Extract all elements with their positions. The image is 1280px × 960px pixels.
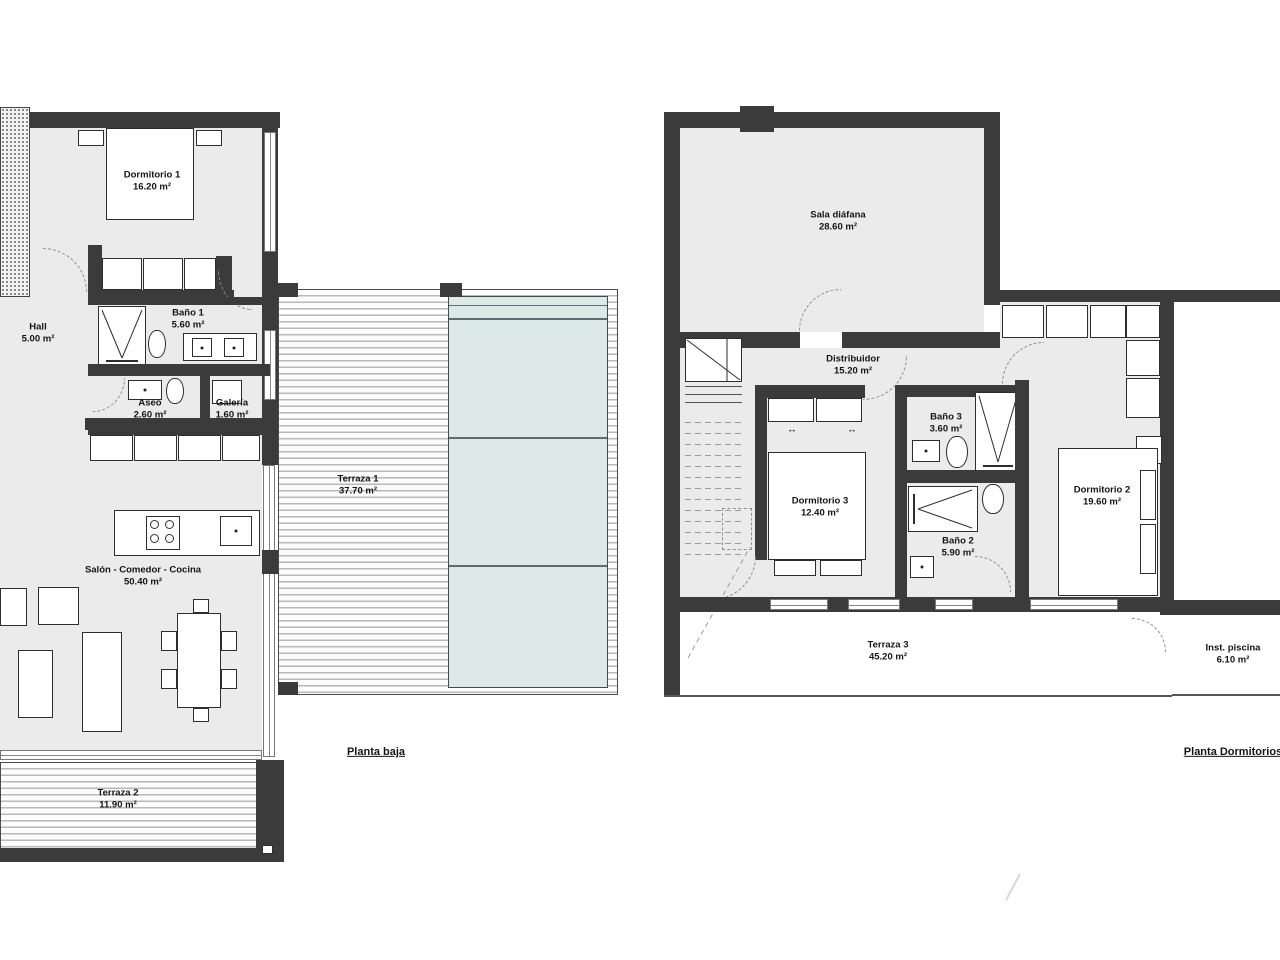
kitchen-sink-icon [220,516,252,546]
stair-tread [685,402,742,403]
window [264,132,276,252]
room-label-hall: Hall 5.00 m² [22,322,55,347]
wall [1015,380,1029,600]
wardrobe-icon [102,258,142,290]
wall-mullion [262,550,278,574]
wall [1000,290,1280,302]
sink-icon [192,338,212,357]
dining-table-icon [177,613,221,708]
burner-icon [150,520,159,529]
wall [88,297,270,305]
room-label-galeria: Galería 1.60 m² [216,398,249,423]
stair-tread [685,386,742,387]
pool-line [449,565,607,567]
hatched-wall [0,107,30,297]
sliding-glass-door [770,599,828,610]
toilet-icon [982,484,1004,514]
room-label-sala: Sala diáfana 28.60 m² [810,210,865,235]
sofa-icon [82,632,122,732]
wardrobe-icon [143,258,183,290]
column-marker [262,845,273,854]
wall [88,428,265,435]
stair-tread [685,394,742,395]
burner-icon [165,534,174,543]
stairs-icon [685,338,742,382]
chair-icon [221,669,237,689]
pillow-icon [774,560,816,576]
wardrobe-icon [90,435,133,461]
wall [895,385,907,600]
floorplan-canvas: Dormitorio 1 16.20 m² Hall 5.00 m² Baño … [0,0,1280,960]
room-label-dormitorio1: Dormitorio 1 16.20 m² [124,170,180,195]
nightstand-icon [196,130,222,146]
room-label-inst-piscina: Inst. piscina 6.10 m² [1206,643,1261,668]
wardrobe-icon [1090,305,1126,338]
room-label-aseo: Aseo 2.60 m² [134,398,167,423]
stairs-dashed-landing [722,508,752,550]
toilet-icon [166,378,184,404]
pool-line [449,305,607,306]
chair-icon [161,631,177,651]
wardrobe-icon [1046,305,1088,338]
chair-icon [221,631,237,651]
pool [448,296,608,688]
pillow-icon [820,560,862,576]
pillow-icon [1140,524,1156,574]
sink-icon [912,440,940,462]
wardrobe-icon [184,258,216,290]
pool-line [449,318,607,320]
armchair-icon [38,587,79,625]
stray-mark [1005,873,1021,900]
wardrobe-icon [768,398,814,422]
plan-title-upper: Planta Dormitorios [1184,745,1280,759]
sliding-glass-door [848,599,900,610]
toilet-icon [148,330,166,358]
sliding-glass-door [1030,599,1118,610]
wall [842,332,1000,348]
room-label-salon: Salón - Comedor - Cocina 50.40 m² [85,565,201,590]
sliding-glass-door [263,465,275,757]
wall [30,112,280,128]
wall [907,470,1029,483]
deck-cap [278,682,298,695]
wall [1160,302,1174,602]
wardrobe-icon [1126,340,1160,376]
nightstand-icon [78,130,104,146]
wall [672,112,990,128]
deck-cap [278,283,298,297]
sink-icon [910,556,934,578]
room-label-bano1: Baño 1 5.60 m² [172,308,205,333]
bathtub-icon [908,486,978,532]
wall [88,364,270,376]
wardrobe-icon [816,398,862,422]
pool-line [449,437,607,439]
wardrobe-icon [134,435,177,461]
toilet-icon [946,436,968,468]
wall [984,112,1000,305]
chimney-block [740,106,774,132]
wardrobe-icon [222,435,260,461]
double-arrow-icon: ↔ [847,425,857,436]
double-arrow-icon: ↔ [787,425,797,436]
plan-title-ground: Planta baja [347,745,405,759]
room-label-bano3: Baño 3 3.60 m² [930,412,963,437]
shower-icon [98,306,146,366]
wall [765,385,865,398]
deck-cap [440,283,462,297]
wardrobe-icon [1002,305,1044,338]
chair-icon [193,599,209,613]
room-label-distribuidor: Distribuidor 15.20 m² [826,354,880,379]
burner-icon [150,534,159,543]
sliding-glass-door [0,750,262,760]
room-label-bano2: Baño 2 5.90 m² [942,536,975,561]
terrace-edge [1172,694,1280,696]
sink-icon [224,338,244,357]
room-label-terraza3: Terraza 3 45.20 m² [867,640,908,665]
wardrobe-icon [178,435,221,461]
pillow-icon [1140,470,1156,520]
wardrobe-icon [1126,378,1160,418]
terrace-edge [664,695,1172,697]
room-label-terraza2: Terraza 2 11.90 m² [97,788,138,813]
door-arc [1132,618,1166,652]
burner-icon [165,520,174,529]
sliding-glass-door [935,599,973,610]
chair-icon [193,708,209,722]
wardrobe-icon [1126,305,1160,338]
wall [0,848,284,862]
room-label-terraza1: Terraza 1 37.70 m² [337,474,378,499]
wall [755,385,767,560]
chair-icon [161,669,177,689]
room-label-dormitorio3: Dormitorio 3 12.40 m² [792,496,848,521]
coffee-table-icon [18,650,53,718]
room-label-dormitorio2: Dormitorio 2 19.60 m² [1074,485,1130,510]
wall [1160,600,1280,615]
armchair-icon [0,588,27,626]
